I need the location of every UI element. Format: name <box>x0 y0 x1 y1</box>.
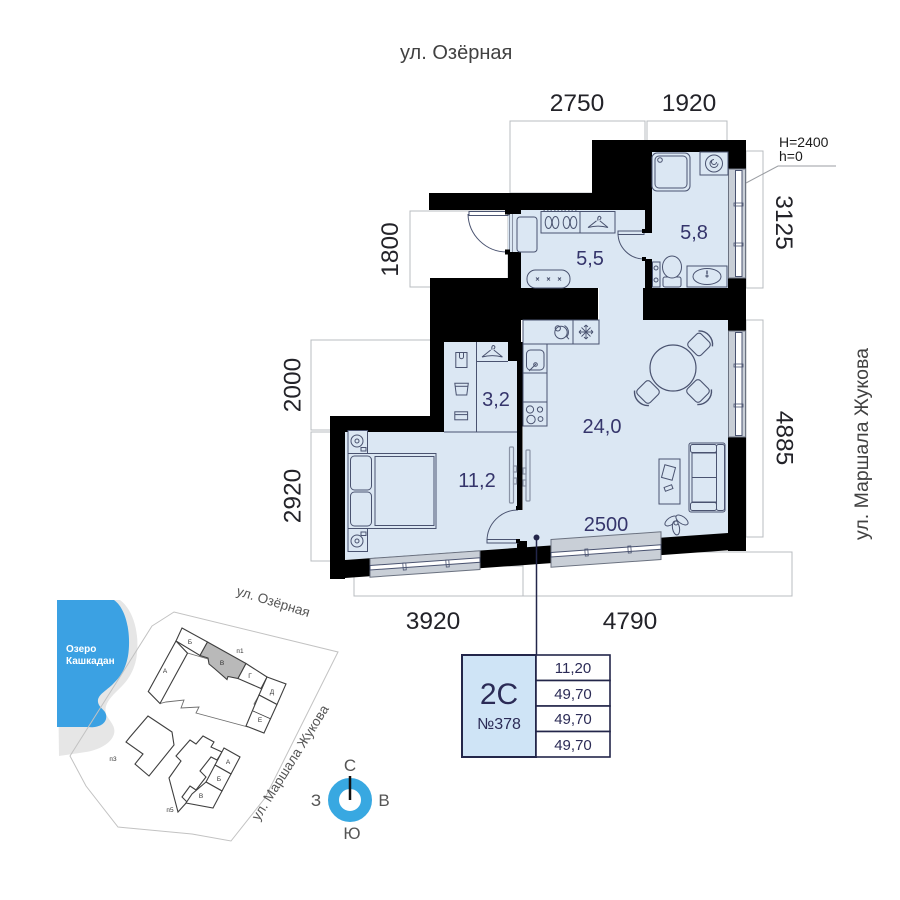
svg-text:А: А <box>163 668 168 675</box>
svg-text:49,70: 49,70 <box>554 686 592 703</box>
svg-text:№378: №378 <box>477 716 521 733</box>
svg-text:Озеро: Озеро <box>66 644 96 655</box>
svg-text:2920: 2920 <box>280 469 307 524</box>
svg-text:А: А <box>226 759 231 766</box>
svg-text:5,8: 5,8 <box>680 222 708 244</box>
svg-text:В: В <box>378 791 389 810</box>
svg-text:п3: п3 <box>109 756 117 763</box>
svg-text:1920: 1920 <box>662 90 717 117</box>
svg-text:Д: Д <box>270 689 275 696</box>
svg-text:49,70: 49,70 <box>554 711 592 728</box>
svg-text:3125: 3125 <box>770 195 797 250</box>
svg-text:4790: 4790 <box>603 608 658 635</box>
svg-text:Ю: Ю <box>343 824 360 843</box>
svg-text:2000: 2000 <box>280 358 307 413</box>
svg-text:Г: Г <box>248 673 252 680</box>
svg-text:11,2: 11,2 <box>458 470 495 492</box>
svg-text:3,2: 3,2 <box>482 389 510 411</box>
svg-text:п1: п1 <box>236 648 244 655</box>
svg-text:В: В <box>220 660 224 667</box>
svg-text:Б: Б <box>217 776 221 783</box>
svg-text:Кашкадан: Кашкадан <box>66 656 115 667</box>
svg-text:24,0: 24,0 <box>583 416 622 438</box>
svg-text:2750: 2750 <box>550 90 605 117</box>
svg-text:Б: Б <box>188 639 192 646</box>
svg-text:ул. Озёрная: ул. Озёрная <box>400 42 512 64</box>
svg-text:11,20: 11,20 <box>555 660 591 677</box>
svg-text:4885: 4885 <box>771 411 798 466</box>
svg-text:5,5: 5,5 <box>576 248 604 270</box>
svg-text:п5: п5 <box>166 807 174 814</box>
svg-text:З: З <box>311 791 321 810</box>
svg-text:2500: 2500 <box>584 514 629 536</box>
svg-text:В: В <box>199 793 203 800</box>
svg-text:h=0: h=0 <box>779 148 803 164</box>
svg-text:С: С <box>344 756 356 775</box>
svg-text:1800: 1800 <box>377 222 404 277</box>
svg-text:2С: 2С <box>480 678 518 711</box>
svg-text:Е: Е <box>258 717 263 724</box>
svg-text:3920: 3920 <box>406 608 461 635</box>
svg-text:ул. Маршала Жукова: ул. Маршала Жукова <box>851 348 873 540</box>
svg-text:49,70: 49,70 <box>554 737 592 754</box>
